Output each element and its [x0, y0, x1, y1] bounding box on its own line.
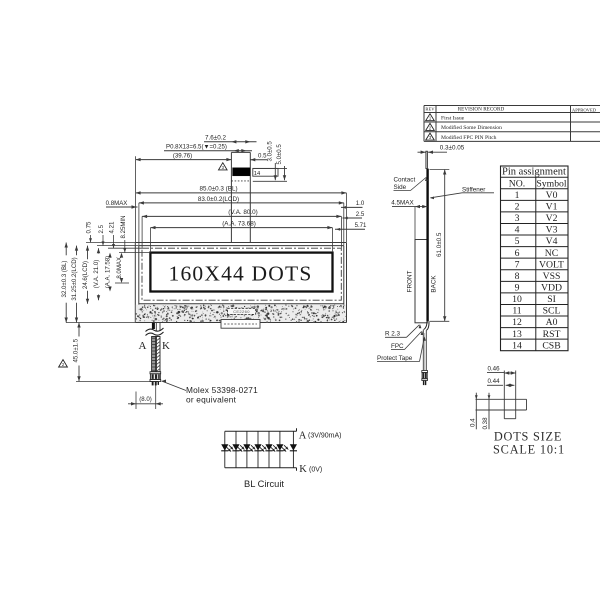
- svg-text:V2: V2: [546, 213, 558, 224]
- svg-text:5.0±0.5: 5.0±0.5: [276, 144, 283, 165]
- svg-text:Modified Some Dimension: Modified Some Dimension: [441, 124, 502, 131]
- svg-text:(8.0): (8.0): [139, 396, 152, 403]
- svg-text:0.8MAX: 0.8MAX: [106, 200, 128, 207]
- svg-text:0.44: 0.44: [487, 378, 500, 385]
- svg-text:7: 7: [515, 259, 520, 270]
- svg-text:4.21: 4.21: [109, 221, 116, 233]
- svg-text:R 2.3: R 2.3: [385, 331, 401, 338]
- svg-text:0.38: 0.38: [482, 417, 489, 430]
- svg-text:A: A: [139, 340, 147, 352]
- svg-text:12: 12: [512, 317, 522, 328]
- svg-text:VDD: VDD: [541, 282, 562, 293]
- svg-text:Contact: Contact: [394, 177, 416, 184]
- svg-text:3.0±0.5: 3.0±0.5: [266, 141, 273, 162]
- svg-text:SI: SI: [547, 294, 556, 305]
- svg-text:V1: V1: [546, 202, 558, 213]
- svg-text:6: 6: [515, 248, 520, 259]
- svg-text:2.5: 2.5: [356, 211, 365, 218]
- svg-text:11: 11: [512, 306, 521, 317]
- svg-text:SCL: SCL: [543, 306, 561, 317]
- svg-text:RST: RST: [543, 329, 561, 340]
- svg-text:1: 1: [515, 190, 520, 201]
- svg-text:FRONT: FRONT: [406, 271, 413, 293]
- svg-text:0.46: 0.46: [487, 366, 500, 373]
- svg-text:or equivalent: or equivalent: [186, 395, 237, 405]
- svg-text:CSB: CSB: [542, 340, 560, 351]
- svg-text:NO.: NO.: [509, 178, 525, 189]
- svg-text:4.5MAX: 4.5MAX: [391, 199, 414, 206]
- svg-text:8: 8: [515, 271, 520, 282]
- svg-text:31.25±0.2(LCD): 31.25±0.2(LCD): [71, 257, 78, 300]
- svg-text:14: 14: [254, 171, 261, 177]
- svg-text:24.6(LCD): 24.6(LCD): [82, 261, 89, 289]
- svg-text:3: 3: [515, 213, 520, 224]
- svg-text:10: 10: [512, 294, 522, 305]
- svg-text:8.25MIN: 8.25MIN: [120, 215, 127, 238]
- svg-text:2: 2: [515, 202, 520, 213]
- svg-text:32.0±0.3 (BL): 32.0±0.3 (BL): [61, 261, 68, 298]
- svg-text:Symbol: Symbol: [536, 178, 566, 189]
- svg-text:(39.76): (39.76): [173, 152, 192, 159]
- svg-text:SCALE 10:1: SCALE 10:1: [493, 443, 565, 457]
- svg-text:83.0±0.2(LCD): 83.0±0.2(LCD): [198, 196, 239, 203]
- svg-text:0.4: 0.4: [470, 418, 477, 427]
- svg-text:4: 4: [515, 225, 520, 236]
- svg-text:Side: Side: [394, 184, 407, 191]
- svg-text:VOLT: VOLT: [539, 259, 564, 270]
- svg-text:85.0±0.3 (BL): 85.0±0.3 (BL): [199, 186, 237, 193]
- svg-text:0.75: 0.75: [85, 221, 92, 233]
- svg-text:13: 13: [512, 329, 522, 340]
- svg-text:A: A: [299, 430, 307, 441]
- svg-text:(A.A. 17.58): (A.A. 17.58): [105, 256, 112, 289]
- svg-text:14: 14: [512, 340, 522, 351]
- svg-text:V3: V3: [546, 225, 558, 236]
- svg-text:K: K: [299, 464, 307, 475]
- svg-text:5: 5: [515, 236, 520, 247]
- svg-text:5.71: 5.71: [355, 222, 367, 229]
- svg-text:First Issue: First Issue: [441, 115, 465, 121]
- svg-text:(3V/90mA): (3V/90mA): [308, 432, 341, 439]
- svg-text:61.0±0.5: 61.0±0.5: [436, 232, 443, 257]
- svg-text:REVISION RECORD: REVISION RECORD: [458, 107, 505, 113]
- svg-text:9: 9: [515, 282, 520, 293]
- svg-text:1.0: 1.0: [356, 200, 365, 207]
- svg-text:APPROVED: APPROVED: [572, 108, 597, 113]
- svg-text:(0V): (0V): [309, 466, 322, 473]
- svg-text:NC: NC: [545, 248, 558, 259]
- svg-text:(V.A. 80.0): (V.A. 80.0): [228, 209, 258, 216]
- svg-text:K: K: [162, 340, 170, 352]
- svg-text:Molex 53398-0271: Molex 53398-0271: [186, 385, 258, 395]
- svg-text:CE2260: CE2260: [233, 309, 250, 314]
- svg-text:7.6±0.2: 7.6±0.2: [205, 135, 226, 142]
- svg-text:Pin assignment: Pin assignment: [502, 166, 566, 177]
- svg-text:45.0±1.5: 45.0±1.5: [73, 338, 80, 362]
- svg-text:8.0MAX: 8.0MAX: [116, 257, 123, 279]
- svg-text:FPC: FPC: [391, 343, 404, 350]
- svg-text:Protect Tape: Protect Tape: [377, 355, 413, 362]
- svg-text:(V.A. 21.0): (V.A. 21.0): [93, 260, 100, 289]
- svg-text:DOTS SIZE: DOTS SIZE: [494, 430, 562, 444]
- svg-text:2.5: 2.5: [98, 224, 105, 233]
- svg-text:REV: REV: [425, 107, 435, 112]
- svg-text:Modified FPC PIN Pitch: Modified FPC PIN Pitch: [441, 134, 497, 141]
- svg-text:160X44 DOTS: 160X44 DOTS: [169, 262, 313, 286]
- svg-text:BACK: BACK: [430, 275, 437, 293]
- svg-text:0.3±0.05: 0.3±0.05: [440, 145, 465, 152]
- svg-text:VSS: VSS: [543, 271, 561, 282]
- svg-text:(A.A. 73.68): (A.A. 73.68): [222, 220, 256, 227]
- svg-text:BL Circuit: BL Circuit: [244, 479, 284, 489]
- svg-text:P0.8X13=6.5(▼=0.25): P0.8X13=6.5(▼=0.25): [166, 144, 227, 151]
- svg-text:A0: A0: [546, 317, 558, 328]
- svg-text:V0: V0: [546, 190, 558, 201]
- svg-text:V4: V4: [546, 236, 558, 247]
